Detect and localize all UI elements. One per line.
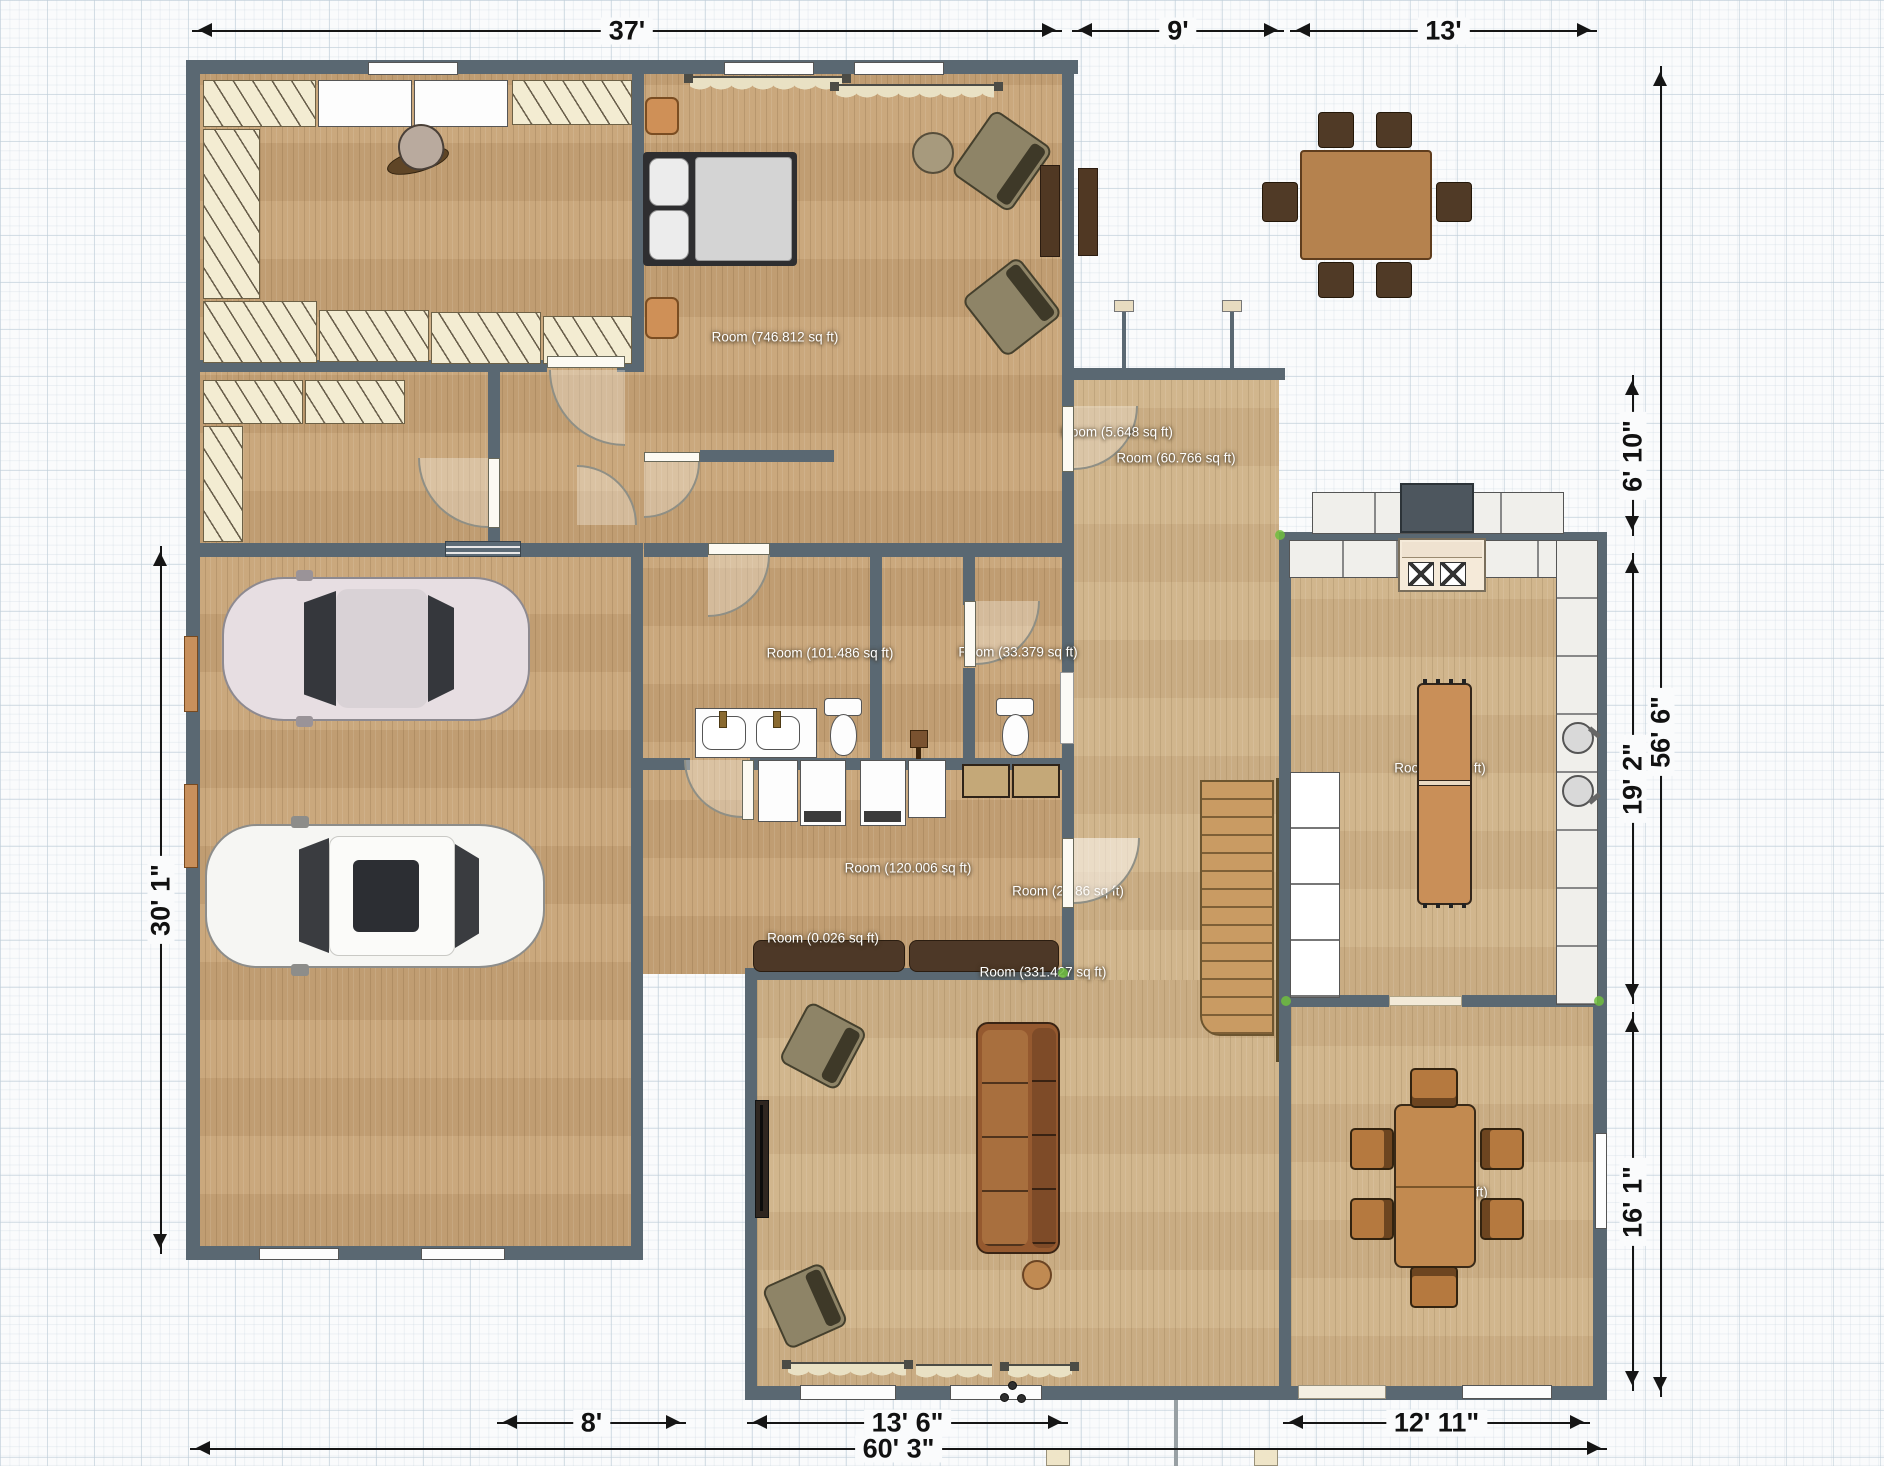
range-backsplash xyxy=(1402,542,1482,558)
faucet xyxy=(773,711,781,728)
pantry-cabinet-column[interactable] xyxy=(1290,772,1340,998)
dimension-label: 13' xyxy=(1417,18,1469,45)
dresser-unit[interactable] xyxy=(414,80,508,127)
wall-bath-divider-2a[interactable] xyxy=(963,543,975,605)
bed-mattress xyxy=(695,157,792,261)
door-closet1[interactable] xyxy=(547,356,625,368)
stove-burner xyxy=(1408,562,1434,586)
dimension-label: 12' 11" xyxy=(1386,1410,1487,1437)
car-mirror xyxy=(291,964,309,976)
curtain-rod-cap xyxy=(904,1360,913,1369)
dimension-label: 6' 10" xyxy=(1620,412,1647,500)
door-handle-dot xyxy=(1008,1381,1017,1390)
range-hood[interactable] xyxy=(1400,483,1474,533)
dining-chair[interactable] xyxy=(1350,1128,1394,1170)
wall-bath-top-a[interactable] xyxy=(644,543,708,557)
dimension-label: 37' xyxy=(601,18,653,45)
pocket-door-hall[interactable] xyxy=(1060,672,1074,744)
dimension-bottom-1: 8' xyxy=(497,1422,686,1424)
wall-laundry-a[interactable] xyxy=(637,758,690,770)
car-rear-window xyxy=(428,595,454,702)
car-suv[interactable] xyxy=(205,824,545,968)
wall-bath-divider-2b[interactable] xyxy=(963,668,975,770)
island-divider xyxy=(1419,780,1470,786)
sofa[interactable] xyxy=(976,1022,1060,1254)
wardrobe-unit[interactable] xyxy=(431,312,541,364)
garage-door-strip[interactable] xyxy=(184,784,198,868)
window-dining-bottom-2[interactable] xyxy=(1462,1385,1552,1399)
dimension-right-1: 6' 10" xyxy=(1632,375,1634,536)
dimension-label: 8' xyxy=(573,1410,610,1437)
room-label: Room (331.427 sq ft) xyxy=(980,965,1107,979)
wall-garage-right[interactable] xyxy=(631,543,643,1260)
dimension-label: 19' 2" xyxy=(1620,735,1647,823)
window-garage-2[interactable] xyxy=(421,1248,505,1260)
dryer-base xyxy=(864,811,901,822)
garage-door-strip[interactable] xyxy=(184,636,198,712)
staircase[interactable] xyxy=(1200,780,1274,1036)
wall-closet2-right[interactable] xyxy=(488,372,500,458)
kitchen-counter-right-column[interactable] xyxy=(1556,540,1598,1005)
dining-table[interactable] xyxy=(1394,1104,1476,1268)
wardrobe-unit[interactable] xyxy=(203,426,243,542)
window-garage-1[interactable] xyxy=(259,1248,339,1260)
dryer[interactable] xyxy=(860,760,906,826)
wall-upper-bottom-b[interactable] xyxy=(520,543,632,557)
wardrobe-unit[interactable] xyxy=(203,380,303,424)
snap-dot xyxy=(1058,968,1068,978)
window-dining-right[interactable] xyxy=(1595,1133,1607,1229)
porch-post xyxy=(1230,305,1234,368)
island-stool-ticks xyxy=(1423,903,1467,908)
car-mirror xyxy=(296,570,313,581)
wall-garage-bottom[interactable] xyxy=(186,1246,643,1260)
wardrobe-unit[interactable] xyxy=(319,310,429,362)
curtain-rod-cap xyxy=(994,82,1003,91)
patio-chair[interactable] xyxy=(1376,262,1412,298)
stair-rail xyxy=(1276,778,1279,1062)
nightstand[interactable] xyxy=(645,297,679,339)
wall-entry-top[interactable] xyxy=(1072,368,1285,380)
dimension-right-2: 19' 2" xyxy=(1632,553,1634,1004)
curtain-rod-cap xyxy=(842,74,851,83)
dimension-top-2: 9' xyxy=(1072,30,1284,32)
vanity-double[interactable] xyxy=(695,708,817,758)
laundry-cabinet[interactable] xyxy=(758,760,798,822)
curtain-living-3[interactable] xyxy=(1008,1364,1072,1381)
window-living-1[interactable] xyxy=(800,1385,896,1400)
window-closet-top[interactable] xyxy=(368,62,458,75)
wardrobe-unit[interactable] xyxy=(305,380,405,424)
room-label: Room (5.648 sq ft) xyxy=(1061,425,1173,439)
wall-bedroom-right[interactable] xyxy=(1062,60,1074,372)
wall-entry-west-b[interactable] xyxy=(1062,472,1074,549)
round-side-table[interactable] xyxy=(912,132,954,174)
small-vanity-stem xyxy=(916,748,921,759)
room-label: Room (101.486 sq ft) xyxy=(767,646,894,660)
door-closet2[interactable] xyxy=(488,458,500,528)
patio-chair[interactable] xyxy=(1318,112,1354,148)
bed[interactable] xyxy=(643,152,797,266)
door-bedroom-hall[interactable] xyxy=(644,452,700,462)
door-handle-dot xyxy=(1000,1393,1009,1402)
window-bedroom-2[interactable] xyxy=(854,62,944,75)
patio-chair[interactable] xyxy=(1436,182,1472,222)
window-living-2[interactable] xyxy=(950,1385,1042,1400)
wall-bedroom-interior[interactable] xyxy=(700,450,834,462)
slatted-rack[interactable] xyxy=(962,764,1010,798)
patio-post xyxy=(1254,1448,1278,1466)
door-handle-dot xyxy=(1017,1394,1026,1403)
dimension-top-1: 37' xyxy=(192,30,1062,32)
room-label: Room (60.766 sq ft) xyxy=(1116,451,1235,465)
kitchen-counter-inner-left[interactable] xyxy=(1289,540,1399,578)
nightstand[interactable] xyxy=(645,97,679,135)
door-front[interactable] xyxy=(1062,406,1074,472)
wall-hall-east-b[interactable] xyxy=(1062,744,1074,840)
door-bathroom[interactable] xyxy=(708,543,770,555)
car-sports[interactable] xyxy=(222,577,530,721)
island-stool-ticks xyxy=(1423,679,1467,684)
slatted-rack[interactable] xyxy=(1012,764,1060,798)
door-laundry[interactable] xyxy=(742,760,754,820)
porch-post-cap xyxy=(1222,300,1242,312)
window-dining-bottom-1[interactable] xyxy=(1298,1385,1386,1399)
curtain-rod-cap xyxy=(684,74,693,83)
tv-screen-line xyxy=(760,1105,763,1211)
dimension-top-3: 13' xyxy=(1290,30,1597,32)
door-wc[interactable] xyxy=(964,601,976,667)
dimension-bottom-4: 60' 3" xyxy=(190,1448,1607,1450)
curtain-rod-cap xyxy=(1000,1362,1009,1371)
sliding-door-garage[interactable] xyxy=(445,541,521,557)
wall-tv[interactable] xyxy=(755,1100,769,1218)
dimension-label: 13' 6" xyxy=(864,1410,952,1437)
wall-upper-bottom-a[interactable] xyxy=(186,543,445,557)
room-label: Room (0.026 sq ft) xyxy=(767,931,879,945)
room-label: Room (120.006 sq ft) xyxy=(845,861,972,875)
wall-dining-west[interactable] xyxy=(1279,1005,1291,1400)
car-rear-window xyxy=(455,844,479,948)
wardrobe-unit[interactable] xyxy=(203,301,317,363)
sofa-back xyxy=(1032,1028,1056,1248)
media-console-bedroom[interactable] xyxy=(1040,165,1060,257)
patio-chair[interactable] xyxy=(1318,262,1354,298)
stove-burner xyxy=(1440,562,1466,586)
dining-chair[interactable] xyxy=(1410,1068,1458,1108)
round-ottoman[interactable] xyxy=(1022,1260,1052,1290)
dimension-right-4: 16' 1" xyxy=(1632,1012,1634,1391)
patio-chair[interactable] xyxy=(1376,112,1412,148)
porch-post-cap xyxy=(1114,300,1134,312)
curtain-rod-cap xyxy=(1070,1362,1079,1371)
porch-post xyxy=(1122,305,1126,368)
dining-chair[interactable] xyxy=(1480,1128,1524,1170)
patio-post xyxy=(1046,1448,1070,1466)
curtain-rod-cap xyxy=(782,1360,791,1369)
curtain-bedroom-2[interactable] xyxy=(836,84,994,101)
curtain-bedroom-1[interactable] xyxy=(690,76,842,93)
car-sunroof xyxy=(353,860,419,932)
small-vanity-stand[interactable] xyxy=(910,730,928,748)
snap-dot xyxy=(1281,996,1291,1006)
dimension-bottom-2: 13' 6" xyxy=(747,1422,1068,1424)
washer-base xyxy=(804,811,841,822)
curtain-living-1[interactable] xyxy=(788,1362,906,1379)
kitchen-island[interactable] xyxy=(1417,683,1472,905)
dimension-right-3: 56' 6" xyxy=(1660,66,1662,1397)
curtain-living-2[interactable] xyxy=(916,1364,992,1381)
dimension-label: 9' xyxy=(1159,18,1196,45)
dimension-bottom-3: 12' 11" xyxy=(1283,1422,1590,1424)
car-roof xyxy=(336,589,428,708)
console-outside[interactable] xyxy=(1078,168,1098,256)
curtain-rod-cap xyxy=(830,82,839,91)
car-windshield xyxy=(299,838,329,953)
porch-divider-line xyxy=(1174,1400,1178,1466)
door-hall-living[interactable] xyxy=(1062,838,1074,908)
room-label: Room (746.812 sq ft) xyxy=(712,330,839,344)
wardrobe-unit[interactable] xyxy=(512,80,632,125)
dining-chair[interactable] xyxy=(1350,1198,1394,1240)
bed-pillow xyxy=(649,158,689,206)
washer[interactable] xyxy=(800,760,846,826)
laundry-cabinet[interactable] xyxy=(908,760,946,818)
dimension-label: 16' 1" xyxy=(1620,1158,1647,1246)
dining-table-seam xyxy=(1396,1186,1474,1188)
wardrobe-unit[interactable] xyxy=(203,80,316,127)
toilet-bowl[interactable] xyxy=(830,714,857,756)
faucet xyxy=(719,711,727,728)
sofa-seat xyxy=(982,1030,1028,1246)
dimension-label: 56' 6" xyxy=(1648,688,1675,776)
car-mirror xyxy=(296,716,313,727)
dresser-unit[interactable] xyxy=(318,80,412,127)
snap-dot xyxy=(1275,530,1285,540)
patio-chair[interactable] xyxy=(1262,182,1298,222)
snap-dot xyxy=(1594,996,1604,1006)
car-mirror xyxy=(291,816,309,828)
toilet-bowl[interactable] xyxy=(1002,714,1029,756)
wall-bath-top-b[interactable] xyxy=(770,543,966,557)
dimension-label: 60' 3" xyxy=(855,1436,943,1463)
floorplan-canvas: { "plan": { "room_labels": [ {"label": "… xyxy=(0,0,1884,1466)
opening-kitchen-dining[interactable] xyxy=(1389,996,1462,1006)
dimension-left-1: 30' 1" xyxy=(160,546,162,1254)
window-bedroom-1[interactable] xyxy=(724,62,814,75)
room-label: Room (33.379 sq ft) xyxy=(958,645,1077,659)
wardrobe-unit[interactable] xyxy=(203,129,260,299)
dimension-label: 30' 1" xyxy=(148,856,175,944)
patio-table[interactable] xyxy=(1300,150,1432,260)
dining-chair[interactable] xyxy=(1410,1266,1458,1308)
car-windshield xyxy=(304,591,336,706)
bed-pillow xyxy=(649,210,689,260)
dining-chair[interactable] xyxy=(1480,1198,1524,1240)
wall-bath-top-c[interactable] xyxy=(966,543,1072,557)
